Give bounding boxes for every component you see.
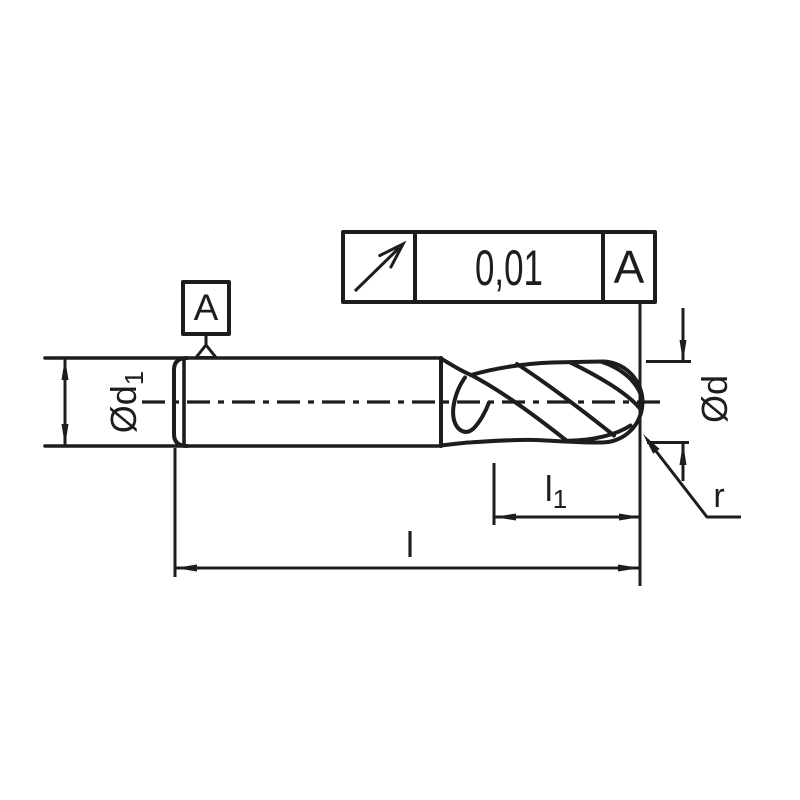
flute-gash-curve [453,378,489,432]
arrowhead-up [62,358,69,380]
tolerance-datum-ref: A [614,241,645,293]
corner-radius-label: r [713,477,724,515]
arrowhead-up [680,443,687,466]
dim-shank-diameter: Ød1 [62,358,150,446]
tolerance-value: 0,01 [475,240,543,296]
arrowhead-right [619,514,641,521]
tolerance-frame: 0,01 A [343,232,655,302]
radius-leader-line [647,440,741,518]
datum-triangle-icon [196,345,216,358]
runout-arrow-shaft [355,248,399,291]
arrowhead-left [494,514,516,521]
datum-flag-label: A [194,287,219,328]
end-mill-technical-drawing: 0,01 A A Ød1 Ød l1 [0,0,800,800]
shank-diameter-label: Ød1 [103,371,149,434]
arrowhead-left [175,565,197,572]
circular-runout-icon [355,244,403,291]
flute-length-label: l1 [545,468,567,514]
overall-length-label: l [406,524,414,565]
cutting-diameter-label: Ød [694,375,735,423]
arrowhead-down [680,340,687,362]
spiral-flute-2 [517,364,614,436]
leader-corner-radius: r [643,434,741,517]
dim-overall-length: l [175,448,640,577]
arrowhead-right [618,565,640,572]
dim-flute-length: l1 [494,463,641,525]
arrowhead-down [62,424,69,446]
datum-flag: A [183,282,229,358]
drawing-canvas: 0,01 A A Ød1 Ød l1 [0,0,800,800]
